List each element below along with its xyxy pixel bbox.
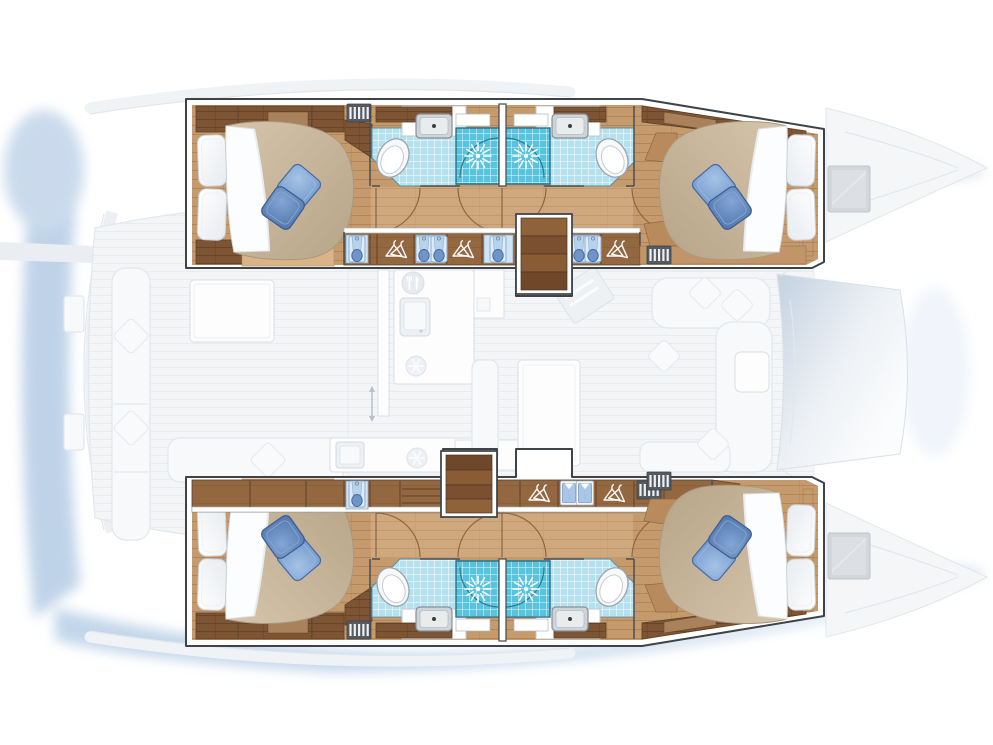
washbasin-icon: [416, 607, 452, 631]
bed-double-icon: [197, 121, 354, 259]
fridge-snowflake-icon: [406, 356, 426, 376]
foredeck-port: Port foredeck with hatch (dimmed): [826, 108, 987, 242]
yacht-floorplan-screenshot: Saloon and galley (dimmed) Aft cockpit (…: [0, 0, 993, 745]
washbasin-icon: [552, 114, 588, 138]
companionway-stairs-icon: [446, 455, 492, 470]
hanging-towel-icon: [585, 236, 601, 262]
vent-grille-icon: [347, 104, 371, 122]
bed-double-icon: [659, 121, 816, 259]
bow-lounge: Forward cockpit between bows (dimmed): [777, 246, 908, 499]
fridge-snowflake-icon: [407, 448, 427, 468]
hanging-towel-icon: [349, 481, 365, 507]
deck-hatch-icon: [828, 166, 870, 212]
wardrobes-port: Wardrobe lockers, port hull: [344, 228, 640, 265]
saloon-bench: [472, 360, 498, 462]
vent-grille-icon: [647, 246, 671, 264]
hanging-towel-icon: [416, 236, 432, 262]
cutlery-icon: [402, 272, 424, 294]
companionway-stairs-icon: [521, 218, 567, 236]
deck-hatch-icon: [828, 533, 870, 579]
hanging-towel-icon: [490, 236, 506, 262]
folded-shirt-icon: [577, 481, 594, 505]
hull-starboard: Starboard hull accommodation Aft double …: [186, 449, 824, 646]
hanging-towel-icon: [349, 236, 365, 262]
washbasin-icon: [416, 114, 452, 138]
stairs-port: Companionway steps, port hull: [516, 214, 572, 294]
vent-grille-icon: [647, 472, 671, 490]
bathroom-aft-starboard: Aft shower room, starboard hull: [371, 559, 502, 639]
sliding-door: [378, 270, 389, 416]
foredeck-starboard: Starboard foredeck with hatch (dimmed): [826, 503, 987, 637]
folded-shirt-icon: [561, 481, 578, 505]
cockpit-table: [190, 280, 274, 342]
floor-plan-canvas: Saloon and galley (dimmed) Aft cockpit (…: [0, 0, 993, 745]
saloon: [330, 266, 814, 475]
bathroom-aft-port: Aft shower room, port hull: [371, 106, 502, 186]
hanging-towel-icon: [431, 236, 447, 262]
vent-grille-icon: [347, 621, 371, 639]
hull-port: Port hull accommodation Aft double cabin…: [186, 99, 824, 296]
bed-double-icon: [659, 485, 816, 623]
stairs-starboard: Companionway steps, starboard hull: [441, 451, 497, 517]
washbasin-icon: [552, 607, 588, 631]
